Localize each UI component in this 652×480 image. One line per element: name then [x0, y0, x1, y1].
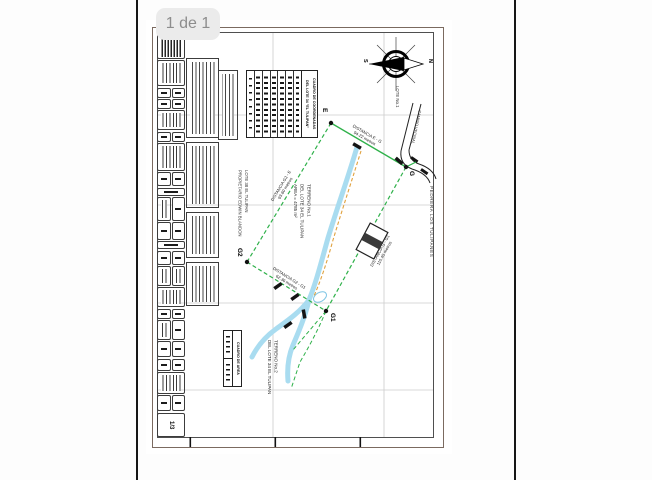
table-cell [224, 331, 232, 359]
notes-box [186, 212, 219, 258]
title-block-cell [172, 341, 186, 357]
lote38-line2: PROPIETARIO EDWIN BLANDON [236, 170, 242, 237]
compass-south-label: S [362, 59, 368, 63]
title-block-cell [172, 132, 186, 142]
title-block-cell [172, 99, 186, 109]
compass-north-label: N [427, 59, 433, 63]
title-block-cell [157, 395, 171, 411]
sheet-number: 1/3 [168, 421, 174, 429]
title-block-cell [157, 251, 171, 265]
notes-box [218, 70, 238, 140]
title-block-cell [172, 320, 186, 340]
lote38-line1: LOTE 38 EL TULIPAN [242, 170, 248, 237]
notes-box [186, 262, 219, 306]
terreno1-line1: TERRENO No.1 [305, 184, 312, 238]
table-cell [224, 359, 232, 386]
notes-box [186, 142, 219, 208]
title-block-cell [172, 222, 186, 240]
title-block-cell [157, 287, 185, 307]
title-block-cell [157, 341, 171, 357]
compass-rose-icon [369, 37, 423, 91]
terreno1-line2: DEL LOTE 34 EL TULIPAN [298, 184, 305, 238]
area-table: CUADRO DE AREA [223, 330, 242, 387]
coordinates-table-title: CUADRO DE COORDENADAS DEL LOTE 34 "EL TU… [301, 71, 317, 137]
page-indicator-pill: 1 de 1 [156, 8, 220, 40]
terreno2-line1: TERRENO No.2 [272, 340, 279, 394]
title-block-cell [172, 251, 186, 265]
coordinates-table-subtitle-text: DEL LOTE 34 "EL TULIPAN" [303, 71, 310, 137]
frame-ticks [190, 437, 362, 447]
title-block-cell [157, 88, 171, 98]
area-table-title: CUADRO DE AREA [233, 331, 241, 386]
title-block-cell [172, 395, 186, 411]
title-block-cell [157, 188, 185, 196]
title-block-cell [172, 266, 186, 286]
table-column [294, 71, 301, 137]
title-block-cell [172, 172, 186, 186]
title-block-cell [157, 320, 171, 340]
table-column [255, 71, 263, 137]
sheet-number-cell: 1/3 [157, 413, 185, 437]
title-block-cell [157, 143, 185, 171]
terreno1-label: TERRENO No.1 DEL LOTE 34 EL TULIPAN AREA… [291, 184, 311, 238]
title-block-cell [157, 222, 171, 240]
title-block-cell [172, 197, 186, 221]
terreno1-line3: AREA = 4785 m² [291, 184, 298, 238]
table-column [247, 71, 255, 137]
lote38-label: LOTE 38 EL TULIPAN PROPIETARIO EDWIN BLA… [236, 170, 249, 237]
coordinates-table: CUADRO DE COORDENADAS DEL LOTE 34 "EL TU… [246, 70, 318, 138]
terreno2-label: TERRENO No.2 DEL LOTE 34 EL TULIPAN [265, 340, 279, 394]
terreno2-line2: DEL LOTE 34 EL TULIPAN [265, 340, 272, 394]
notes-box [186, 58, 219, 138]
title-block-strip: 1/3 [157, 33, 185, 437]
title-block-cell [172, 88, 186, 98]
title-block-cell [157, 309, 171, 319]
table-column [286, 71, 294, 137]
lote1-label: LOTE No.1 [395, 86, 400, 108]
title-block-cell [157, 99, 171, 109]
pedrera-label: PEDRERA LOS TULIPANES [429, 186, 434, 257]
title-block-cell [172, 359, 186, 371]
title-block-cell [157, 110, 185, 130]
table-column [271, 71, 279, 137]
title-block-cell [157, 359, 171, 371]
title-block-cell [157, 266, 171, 286]
title-block-cell [157, 372, 185, 394]
title-block-cell [157, 241, 185, 249]
trail-line [314, 151, 361, 296]
title-block-cell [157, 132, 171, 142]
point-label-e: E [321, 108, 328, 112]
coordinates-table-title-text: CUADRO DE COORDENADAS [310, 71, 317, 137]
point-label-g: G [408, 171, 415, 176]
point-label-g1: G1 [329, 313, 336, 322]
title-block-cell [172, 309, 186, 319]
table-column [263, 71, 271, 137]
table-column [278, 71, 286, 137]
title-block-cell [157, 60, 185, 86]
area-table-cells [224, 331, 233, 386]
coordinates-table-body [247, 71, 301, 137]
page-indicator-label: 1 de 1 [166, 15, 210, 33]
title-block-cell [157, 197, 171, 221]
screenshot-root: { "viewer": { "page_indicator": "1 de 1"… [0, 0, 652, 480]
survey-drawing-linework [0, 0, 652, 480]
title-block-cell [157, 172, 171, 186]
point-label-g2: G2 [236, 248, 243, 257]
